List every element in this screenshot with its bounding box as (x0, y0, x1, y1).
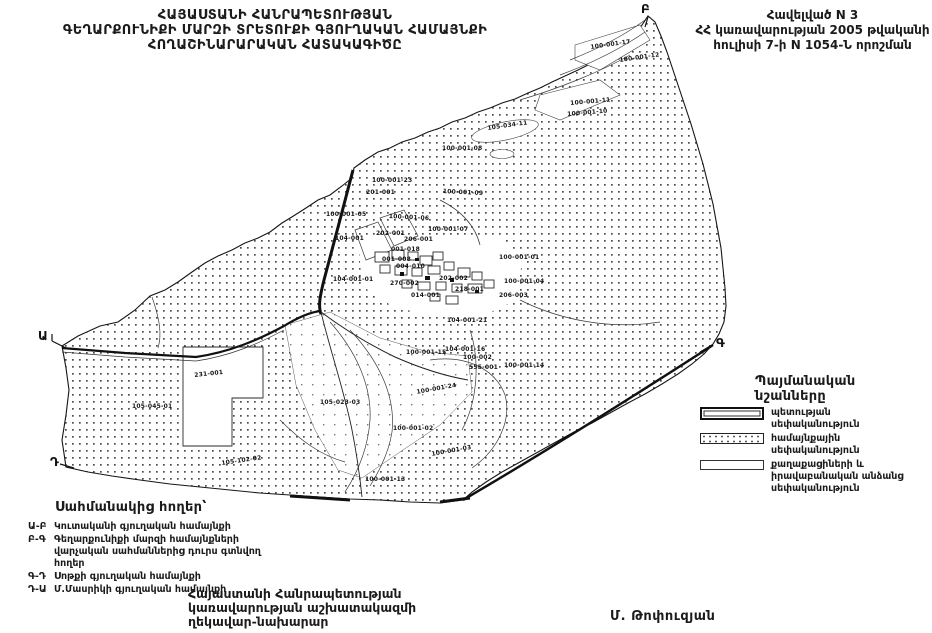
parcel-label: 105-102-02 (221, 454, 262, 467)
border-item-bg: Բ-Գ Գեղարքունիքի մարզի համայնքների վարչա… (28, 534, 293, 570)
parcel-label: 100-001-08 (442, 145, 482, 152)
boundary-corner-letter: Դ (50, 455, 59, 469)
annex-line-2: ՀՀ կառավարության 2005 թվականի (695, 23, 930, 38)
parcel-label: 100-001-05 (326, 211, 366, 218)
map-title: ՀԱՅԱՍՏԱՆԻ ՀԱՆՐԱՊԵՏՈՒԹՅԱՆ ԳԵՂԱՐՔՈՒՆԻՔԻ ՄԱ… (40, 8, 510, 53)
parcel-label: 100-001-07 (428, 226, 468, 233)
legend-label-private: քաղաքացիների և իրավաբանական անձանց սեփակ… (771, 459, 921, 495)
legend-title: Պայմանական նշանները (755, 374, 930, 404)
issuer-line-3: ղեկավար-նախարար (188, 615, 488, 629)
issuer-line-2: կառավարության աշխատակազմի (188, 601, 488, 615)
parcel-label: 100-001-04 (504, 278, 544, 285)
parcel-label: 206-001 (404, 236, 433, 243)
parcel-label: 104-001-01 (333, 276, 373, 283)
signature: Մ. Թոփուզյան (610, 609, 715, 624)
legend-row-state: պետության սեփականություն (700, 407, 930, 431)
parcel-label: 100-001-02 (393, 425, 433, 432)
border-item-ab: Ա-Բ Կուտականի գյուղական համայնքի (28, 521, 293, 533)
parcel-label: 104-001 (335, 235, 364, 242)
title-line-2: ԳԵՂԱՐՔՈՒՆԻՔԻ ՄԱՐԶԻ ՏՐԵՏՈՒՔԻ ԳՅՈՒՂԱԿԱՆ ՀԱ… (40, 23, 510, 38)
parcel-label: 100-001-01 (499, 254, 539, 261)
parcel-label: 100-001-13 (365, 476, 405, 483)
parcel-label: 014-001 (411, 292, 440, 299)
legend-swatch-state (700, 407, 764, 420)
parcel-label: 218-001 (455, 286, 484, 293)
legend-swatch-private (700, 460, 764, 470)
parcel-label: 105-023-03 (320, 399, 360, 406)
issuer-block: Հայաստանի Հանրապետության կառավարության ա… (188, 587, 488, 629)
parcel-label: 270-002 (390, 280, 419, 287)
parcel-label: 105-034-11 (487, 119, 528, 132)
parcel-label: 100-001-10 (567, 107, 608, 117)
legend-label-state: պետության սեփականություն (771, 407, 921, 431)
legend-label-community: համայնքային սեփականություն (771, 433, 921, 457)
parcel-label: 104-001-21 (447, 317, 487, 324)
parcel-label: 001-008 (382, 256, 411, 263)
parcel-label: 202-002 (439, 275, 468, 282)
scanned-map-page: 100-001-17100-001-12100-001-11100-001-10… (0, 0, 932, 633)
parcel-label: 100-001-14 (504, 362, 544, 369)
parcel-label: 100-001-17 (590, 38, 631, 51)
boundary-corner-letter: Ա (38, 329, 48, 343)
bordering-lands: Սահմանակից հողեր՝ Ա-Բ Կուտականի գյուղակա… (28, 500, 293, 597)
parcel-label: 100-001-12 (619, 51, 660, 64)
issuer-line-1: Հայաստանի Հանրապետության (188, 587, 488, 601)
parcel-label: 001-018 (391, 246, 420, 253)
parcel-label: 555-001 (469, 364, 498, 371)
parcel-label: 100-002 (463, 354, 492, 361)
parcel-label: 104-001-16 (445, 346, 485, 353)
legend: Պայմանական նշանները պետության սեփականութ… (700, 374, 930, 497)
parcel-label: 100-001-15 (406, 349, 446, 356)
parcel-label: 202-001 (376, 230, 405, 237)
legend-swatch-community (700, 433, 764, 444)
legend-row-community: համայնքային սեփականություն (700, 433, 930, 457)
parcel-label: 231-001 (194, 369, 224, 379)
annex-line-3: հուլիսի 7-ի N 1054-Ն որոշման (695, 38, 930, 53)
boundary-corner-letter: Գ (716, 336, 725, 350)
legend-row-private: քաղաքացիների և իրավաբանական անձանց սեփակ… (700, 459, 930, 495)
title-line-1: ՀԱՅԱՍՏԱՆԻ ՀԱՆՐԱՊԵՏՈՒԹՅԱՆ (40, 8, 510, 23)
bordering-lands-title: Սահմանակից հողեր՝ (55, 500, 293, 515)
parcel-label: 201-001 (366, 189, 395, 196)
parcel-label: 100-001-09 (443, 188, 484, 197)
border-item-gd: Գ-Դ Սոթքի գյուղական համայնքի (28, 571, 293, 583)
annex-reference: Հավելված N 3 ՀՀ կառավարության 2005 թվակա… (695, 8, 930, 53)
parcel-label: 100-001-06 (389, 213, 430, 222)
title-line-3: ՀՈՂԱՇԻՆԱՐԱՐԱԿԱՆ ՀԱՏԱԿԱԳԻԾԸ (40, 38, 510, 53)
parcel-label: 100-001-11 (570, 96, 611, 106)
boundary-corner-letter: Բ (641, 2, 650, 16)
parcel-label: 100-001-24 (416, 382, 457, 396)
parcel-label: 100-001-23 (372, 177, 412, 184)
parcel-label: 100-001-03 (431, 444, 472, 458)
annex-line-1: Հավելված N 3 (695, 8, 930, 23)
parcel-label: 105-045-01 (132, 403, 172, 410)
parcel-label: 206-003 (499, 292, 528, 299)
parcel-label: 004-010 (396, 263, 425, 270)
